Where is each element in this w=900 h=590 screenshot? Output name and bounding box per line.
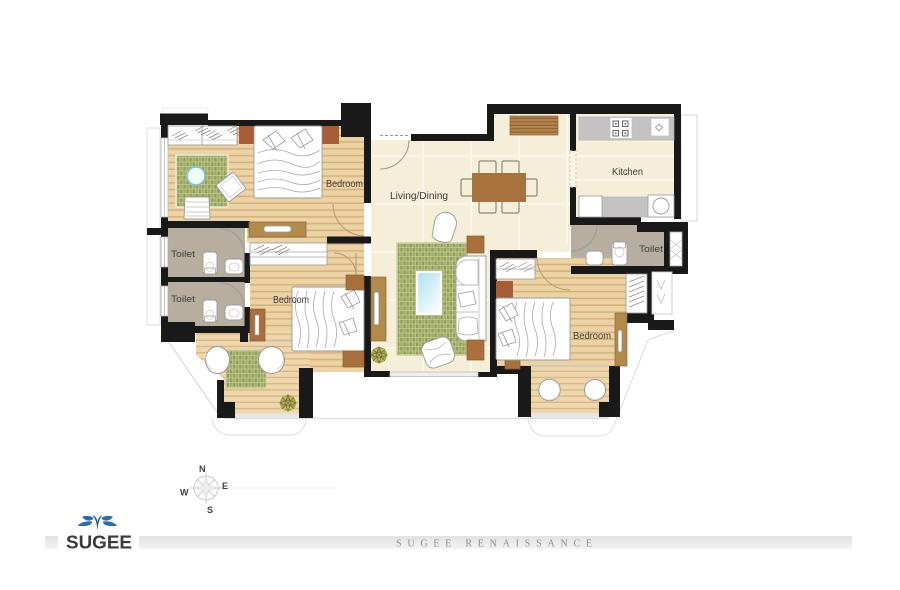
svg-text:Kitchen: Kitchen (612, 166, 643, 178)
svg-text:E: E (222, 481, 228, 491)
svg-text:Toilet: Toilet (639, 244, 663, 255)
svg-text:S: S (207, 505, 213, 515)
svg-text:Bedroom: Bedroom (273, 294, 309, 306)
svg-text:SUGEE: SUGEE (66, 533, 132, 553)
svg-text:Bedroom: Bedroom (573, 330, 611, 342)
svg-text:Living/Dining: Living/Dining (390, 190, 448, 202)
svg-text:Bedroom: Bedroom (326, 178, 363, 190)
svg-text:Toilet: Toilet (171, 249, 195, 260)
svg-text:Toilet: Toilet (171, 294, 195, 305)
svg-text:SUGEE RENAISSANCE: SUGEE RENAISSANCE (396, 539, 597, 550)
svg-text:N: N (199, 464, 206, 474)
svg-text:W: W (180, 488, 189, 498)
